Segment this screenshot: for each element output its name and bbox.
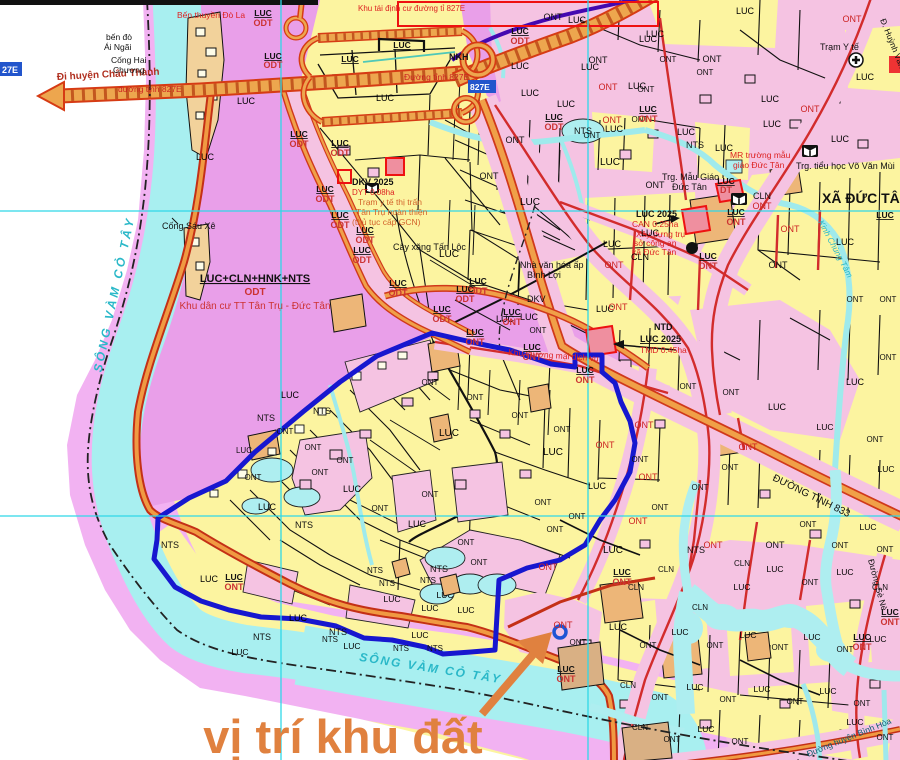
svg-text:Bình Lợi: Bình Lợi: [527, 270, 561, 280]
svg-text:Ái Ngãi: Ái Ngãi: [104, 42, 132, 52]
svg-text:CLN: CLN: [658, 565, 674, 574]
svg-text:ONT: ONT: [646, 180, 666, 190]
svg-text:Đường tỉnh 827E: Đường tỉnh 827E: [404, 72, 469, 82]
svg-text:LUC: LUC: [421, 603, 438, 613]
svg-text:LUC: LUC: [736, 6, 755, 16]
svg-text:ONT: ONT: [707, 641, 724, 650]
svg-text:LUC+CLN+HNK+NTS: LUC+CLN+HNK+NTS: [200, 273, 310, 285]
svg-text:ONT: ONT: [692, 483, 709, 492]
svg-text:LUC: LUC: [439, 428, 459, 439]
svg-text:MR trường mẫu: MR trường mẫu: [730, 150, 791, 160]
svg-text:ONT: ONT: [697, 68, 714, 77]
svg-text:NTS: NTS: [257, 413, 275, 423]
svg-text:ONT: ONT: [547, 525, 564, 534]
svg-text:ONT: ONT: [739, 442, 759, 452]
svg-text:ONT: ONT: [680, 382, 697, 391]
svg-text:ODT: ODT: [511, 36, 531, 46]
svg-text:LUC: LUC: [411, 630, 428, 640]
svg-text:ONT: ONT: [832, 541, 849, 550]
svg-text:ONT: ONT: [802, 578, 819, 587]
svg-text:LUC: LUC: [254, 8, 271, 18]
svg-text:ONT: ONT: [727, 217, 747, 227]
svg-text:ODT: ODT: [456, 294, 476, 304]
svg-text:LUC: LUC: [686, 682, 703, 692]
svg-text:ONT: ONT: [772, 643, 789, 652]
svg-text:ODT: ODT: [316, 194, 336, 204]
svg-text:LUC: LUC: [639, 34, 658, 44]
svg-text:ONT: ONT: [277, 427, 294, 436]
svg-text:CLN: CLN: [692, 603, 708, 612]
svg-text:ONT: ONT: [867, 435, 884, 444]
svg-text:LUC: LUC: [727, 207, 744, 217]
svg-text:ONT: ONT: [635, 420, 655, 430]
svg-text:ONT: ONT: [787, 697, 804, 706]
svg-text:NTS: NTS: [322, 635, 338, 644]
svg-text:NTS: NTS: [295, 520, 313, 530]
svg-text:LUC: LUC: [588, 481, 607, 491]
svg-text:LUC: LUC: [568, 15, 587, 25]
svg-text:XÃ ĐỨC TÂN: XÃ ĐỨC TÂN: [822, 189, 900, 206]
svg-text:LUC: LUC: [356, 225, 373, 235]
svg-text:LUC: LUC: [383, 594, 400, 604]
svg-text:LUC: LUC: [576, 365, 593, 375]
svg-text:LUC: LUC: [739, 630, 756, 640]
svg-text:ONT: ONT: [877, 733, 894, 742]
svg-text:LUC 2025: LUC 2025: [640, 334, 681, 344]
svg-text:LUC: LUC: [613, 567, 630, 577]
svg-text:vị trí khu đất: vị trí khu đất: [203, 710, 483, 760]
svg-text:ONT: ONT: [837, 645, 854, 654]
svg-text:827E: 827E: [470, 82, 490, 92]
svg-text:ONT: ONT: [458, 538, 475, 547]
svg-text:ONT: ONT: [422, 378, 439, 387]
svg-text:ODT: ODT: [290, 139, 310, 149]
svg-text:ONT: ONT: [843, 14, 863, 24]
svg-text:Trg. tiểu học Võ Văn Mùi: Trg. tiểu học Võ Văn Mùi: [796, 161, 895, 171]
svg-text:ONT: ONT: [599, 82, 619, 92]
svg-text:LUC: LUC: [603, 545, 623, 556]
svg-text:LUC: LUC: [457, 605, 474, 615]
svg-text:CLN: CLN: [632, 723, 648, 732]
svg-text:LUC: LUC: [836, 567, 853, 577]
svg-text:ONT: ONT: [480, 171, 500, 181]
svg-text:CLN: CLN: [872, 583, 888, 592]
svg-text:LUC: LUC: [639, 104, 656, 114]
svg-text:LUC: LUC: [831, 134, 850, 144]
svg-text:LUC: LUC: [523, 342, 540, 352]
svg-text:ONT: ONT: [467, 393, 484, 402]
svg-text:LUC 2025: LUC 2025: [636, 209, 677, 219]
svg-text:LUC: LUC: [869, 634, 886, 644]
svg-text:LUC: LUC: [846, 377, 865, 387]
svg-text:ONT: ONT: [629, 516, 649, 526]
svg-text:LUC: LUC: [408, 519, 427, 529]
svg-text:CLN: CLN: [620, 681, 636, 690]
svg-text:ONT: ONT: [638, 85, 655, 94]
svg-text:Nhà văn hóa ấp: Nhà văn hóa ấp: [520, 260, 584, 270]
svg-text:ONT: ONT: [877, 545, 894, 554]
svg-text:ONT: ONT: [512, 411, 529, 420]
svg-text:LUC: LUC: [816, 422, 833, 432]
svg-text:ONT: ONT: [640, 641, 657, 650]
svg-text:LUC: LUC: [859, 522, 876, 532]
svg-text:LUC: LUC: [520, 312, 539, 322]
svg-text:LUC: LUC: [819, 686, 836, 696]
svg-text:LUC: LUC: [677, 127, 696, 137]
svg-text:ONT: ONT: [569, 512, 586, 521]
svg-text:LUC: LUC: [236, 446, 252, 455]
svg-text:LUC: LUC: [439, 249, 459, 260]
svg-text:LUC: LUC: [456, 284, 473, 294]
svg-text:LUC: LUC: [876, 210, 893, 220]
svg-text:LUC: LUC: [856, 72, 875, 82]
svg-text:LUC: LUC: [715, 143, 734, 153]
svg-text:LUC: LUC: [353, 245, 370, 255]
svg-text:Khu dân cư TT Tân Trụ - Đức Tâ: Khu dân cư TT Tân Trụ - Đức Tân: [179, 301, 330, 312]
svg-text:ONT: ONT: [544, 12, 564, 22]
svg-text:ONT: ONT: [632, 455, 649, 464]
svg-text:ONT: ONT: [652, 693, 669, 702]
svg-text:LUC: LUC: [543, 447, 563, 458]
svg-text:ONT: ONT: [880, 295, 897, 304]
svg-text:LUC: LUC: [768, 402, 787, 412]
svg-text:Chương: Chương: [113, 65, 145, 75]
svg-text:ONT: ONT: [589, 55, 609, 65]
svg-text:ODT: ODT: [254, 18, 274, 28]
svg-text:ONT: ONT: [609, 302, 629, 312]
svg-text:Tân Trụ hoàn thiện: Tân Trụ hoàn thiện: [356, 207, 428, 217]
svg-text:CLN: CLN: [734, 559, 750, 568]
svg-text:đường tỉnh 827E: đường tỉnh 827E: [118, 84, 182, 94]
svg-text:ONT: ONT: [557, 674, 577, 684]
svg-text:NTS: NTS: [686, 140, 704, 150]
svg-text:LUC: LUC: [520, 197, 540, 208]
svg-text:LUC: LUC: [376, 93, 395, 103]
svg-text:NTS: NTS: [313, 406, 331, 416]
svg-text:NTS: NTS: [367, 566, 383, 575]
svg-text:ONT: ONT: [699, 261, 719, 271]
svg-text:Bến thuyền Đò La: Bến thuyền Đò La: [177, 10, 245, 20]
svg-text:ONT: ONT: [554, 425, 571, 434]
svg-text:ONT: ONT: [652, 503, 669, 512]
svg-text:LUC: LUC: [289, 613, 308, 623]
svg-text:ONT: ONT: [732, 737, 749, 746]
svg-text:ODT: ODT: [433, 314, 453, 324]
svg-text:ONT: ONT: [576, 375, 596, 385]
svg-text:NTS: NTS: [687, 545, 705, 555]
svg-text:LUC: LUC: [331, 210, 348, 220]
svg-text:LUC: LUC: [733, 582, 750, 592]
svg-text:LUC: LUC: [761, 94, 780, 104]
svg-text:NTS: NTS: [379, 579, 395, 588]
svg-text:Khu tái định cư đường tỉ 827E: Khu tái định cư đường tỉ 827E: [358, 4, 465, 13]
svg-text:ONT: ONT: [584, 131, 601, 140]
svg-text:LUC: LUC: [231, 647, 248, 657]
svg-text:LUC: LUC: [877, 464, 894, 474]
svg-text:LUC: LUC: [196, 152, 215, 162]
svg-text:LUC: LUC: [836, 237, 855, 247]
svg-text:NTD: NTD: [654, 322, 673, 332]
svg-text:ONT: ONT: [781, 224, 801, 234]
svg-text:ONT: ONT: [660, 55, 677, 64]
svg-text:LUC: LUC: [671, 627, 688, 637]
svg-text:LUC: LUC: [603, 239, 622, 249]
svg-text:Đức Tân: Đức Tân: [672, 182, 707, 192]
svg-text:LUC: LUC: [237, 96, 256, 106]
svg-text:ONT: ONT: [801, 104, 821, 114]
svg-text:LUC: LUC: [609, 622, 628, 632]
svg-text:LUC: LUC: [766, 564, 783, 574]
svg-text:ODT: ODT: [331, 148, 351, 158]
svg-text:ONT: ONT: [372, 504, 389, 513]
svg-text:NTS: NTS: [430, 564, 448, 574]
svg-text:ONT: ONT: [312, 468, 329, 477]
svg-text:ONT: ONT: [503, 317, 523, 327]
svg-text:CLN: CLN: [631, 252, 649, 262]
svg-text:ONT: ONT: [613, 577, 633, 587]
svg-text:ODT: ODT: [389, 288, 409, 298]
svg-text:LUC: LUC: [763, 119, 782, 129]
svg-text:Trạm y tế thị trấn: Trạm y tế thị trấn: [358, 197, 422, 207]
svg-text:ONT: ONT: [554, 620, 574, 630]
svg-text:LUC: LUC: [258, 502, 277, 512]
svg-text:ONT: ONT: [720, 695, 737, 704]
svg-text:ONT: ONT: [530, 326, 547, 335]
svg-text:Trạm Y tế: Trạm Y tế: [820, 42, 859, 52]
svg-text:Trg. Mẫu Giáo: Trg. Mẫu Giáo: [662, 172, 719, 182]
svg-text:ODT: ODT: [353, 255, 373, 265]
svg-text:LUC: LUC: [341, 54, 358, 64]
svg-text:ONT: ONT: [753, 201, 773, 211]
svg-text:27E: 27E: [2, 65, 18, 75]
svg-text:ONT: ONT: [854, 699, 871, 708]
svg-text:LUC: LUC: [753, 684, 770, 694]
svg-text:LUC: LUC: [343, 641, 360, 651]
svg-text:LUC: LUC: [697, 724, 714, 734]
svg-text:CLN: CLN: [753, 191, 771, 201]
svg-text:LUC: LUC: [281, 390, 300, 400]
svg-text:ONT: ONT: [639, 114, 659, 124]
svg-text:ONT: ONT: [847, 295, 864, 304]
svg-text:ONT: ONT: [704, 540, 724, 550]
svg-text:ONT: ONT: [605, 260, 625, 270]
svg-text:LUC: LUC: [699, 251, 716, 261]
svg-text:TMD 0.45ha: TMD 0.45ha: [640, 345, 687, 355]
svg-text:DYT 0.08ha: DYT 0.08ha: [352, 188, 395, 197]
svg-text:ONT: ONT: [523, 352, 543, 362]
svg-text:ONT: ONT: [596, 440, 616, 450]
svg-text:ONT: ONT: [337, 456, 354, 465]
svg-text:LUC: LUC: [466, 327, 483, 337]
svg-text:LUC: LUC: [393, 40, 410, 50]
svg-text:ONT: ONT: [722, 463, 739, 472]
svg-text:LUC: LUC: [521, 88, 540, 98]
svg-text:ONT: ONT: [639, 472, 659, 482]
svg-text:LUC: LUC: [389, 278, 406, 288]
svg-text:NTS: NTS: [420, 576, 436, 585]
svg-text:ONT: ONT: [466, 337, 486, 347]
svg-text:ONT: ONT: [539, 562, 559, 572]
svg-text:giáo Đức Tân: giáo Đức Tân: [733, 160, 785, 170]
svg-text:LUC: LUC: [225, 572, 242, 582]
svg-text:ONT: ONT: [603, 115, 623, 125]
svg-text:ONT: ONT: [723, 388, 740, 397]
svg-text:LUC: LUC: [511, 26, 528, 36]
svg-text:LUC: LUC: [503, 307, 520, 317]
svg-text:LUC: LUC: [331, 138, 348, 148]
svg-text:ODT: ODT: [264, 60, 284, 70]
svg-text:LUC: LUC: [557, 99, 576, 109]
svg-text:DKV 2025: DKV 2025: [352, 177, 394, 187]
svg-text:ONT: ONT: [800, 520, 817, 529]
svg-text:ONT: ONT: [225, 582, 245, 592]
svg-text:ONT: ONT: [853, 642, 873, 652]
svg-text:ONT: ONT: [422, 490, 439, 499]
svg-text:ONT: ONT: [880, 353, 897, 362]
svg-text:ODT: ODT: [244, 287, 265, 298]
svg-text:LUC: LUC: [200, 574, 219, 584]
svg-text:LUC: LUC: [316, 184, 333, 194]
svg-text:ONT: ONT: [769, 260, 789, 270]
svg-text:LUC: LUC: [433, 304, 450, 314]
svg-text:LUC: LUC: [545, 112, 562, 122]
svg-text:NTS: NTS: [393, 644, 409, 653]
svg-text:ONT: ONT: [305, 443, 322, 452]
svg-text:LUC: LUC: [605, 124, 624, 134]
svg-text:ODT: ODT: [331, 220, 351, 230]
svg-text:LUC: LUC: [557, 664, 574, 674]
svg-text:ONT: ONT: [471, 558, 488, 567]
svg-text:DT: DT: [720, 185, 732, 195]
svg-text:NTS: NTS: [161, 540, 179, 550]
svg-text:ODT: ODT: [545, 122, 565, 132]
svg-text:LUC: LUC: [881, 607, 898, 617]
svg-text:ONT: ONT: [570, 638, 587, 647]
svg-text:NKH: NKH: [449, 52, 469, 62]
svg-text:LUC: LUC: [853, 632, 870, 642]
svg-text:ONT: ONT: [766, 540, 786, 550]
svg-text:LUC: LUC: [511, 61, 530, 71]
svg-text:ONT: ONT: [881, 617, 900, 627]
svg-text:ONT: ONT: [245, 473, 262, 482]
svg-text:Cống Hai: Cống Hai: [111, 55, 147, 65]
svg-text:LUC: LUC: [846, 717, 863, 727]
svg-text:ONT: ONT: [664, 735, 681, 744]
svg-text:ONT: ONT: [535, 498, 552, 507]
svg-text:LUC: LUC: [641, 228, 660, 238]
svg-text:LUC: LUC: [803, 632, 820, 642]
svg-text:LUC: LUC: [343, 484, 362, 494]
svg-text:NTS: NTS: [427, 644, 443, 653]
svg-text:LUC: LUC: [600, 157, 620, 168]
svg-text:ONT: ONT: [703, 54, 723, 64]
svg-text:Cống Sáu Xê: Cống Sáu Xê: [162, 221, 216, 231]
svg-text:LUC: LUC: [290, 129, 307, 139]
svg-text:bến đò: bến đò: [106, 32, 132, 42]
svg-text:ODT: ODT: [356, 235, 376, 245]
svg-text:ONT: ONT: [506, 135, 526, 145]
svg-text:NTS: NTS: [253, 632, 271, 642]
svg-text:DKV: DKV: [527, 294, 546, 304]
